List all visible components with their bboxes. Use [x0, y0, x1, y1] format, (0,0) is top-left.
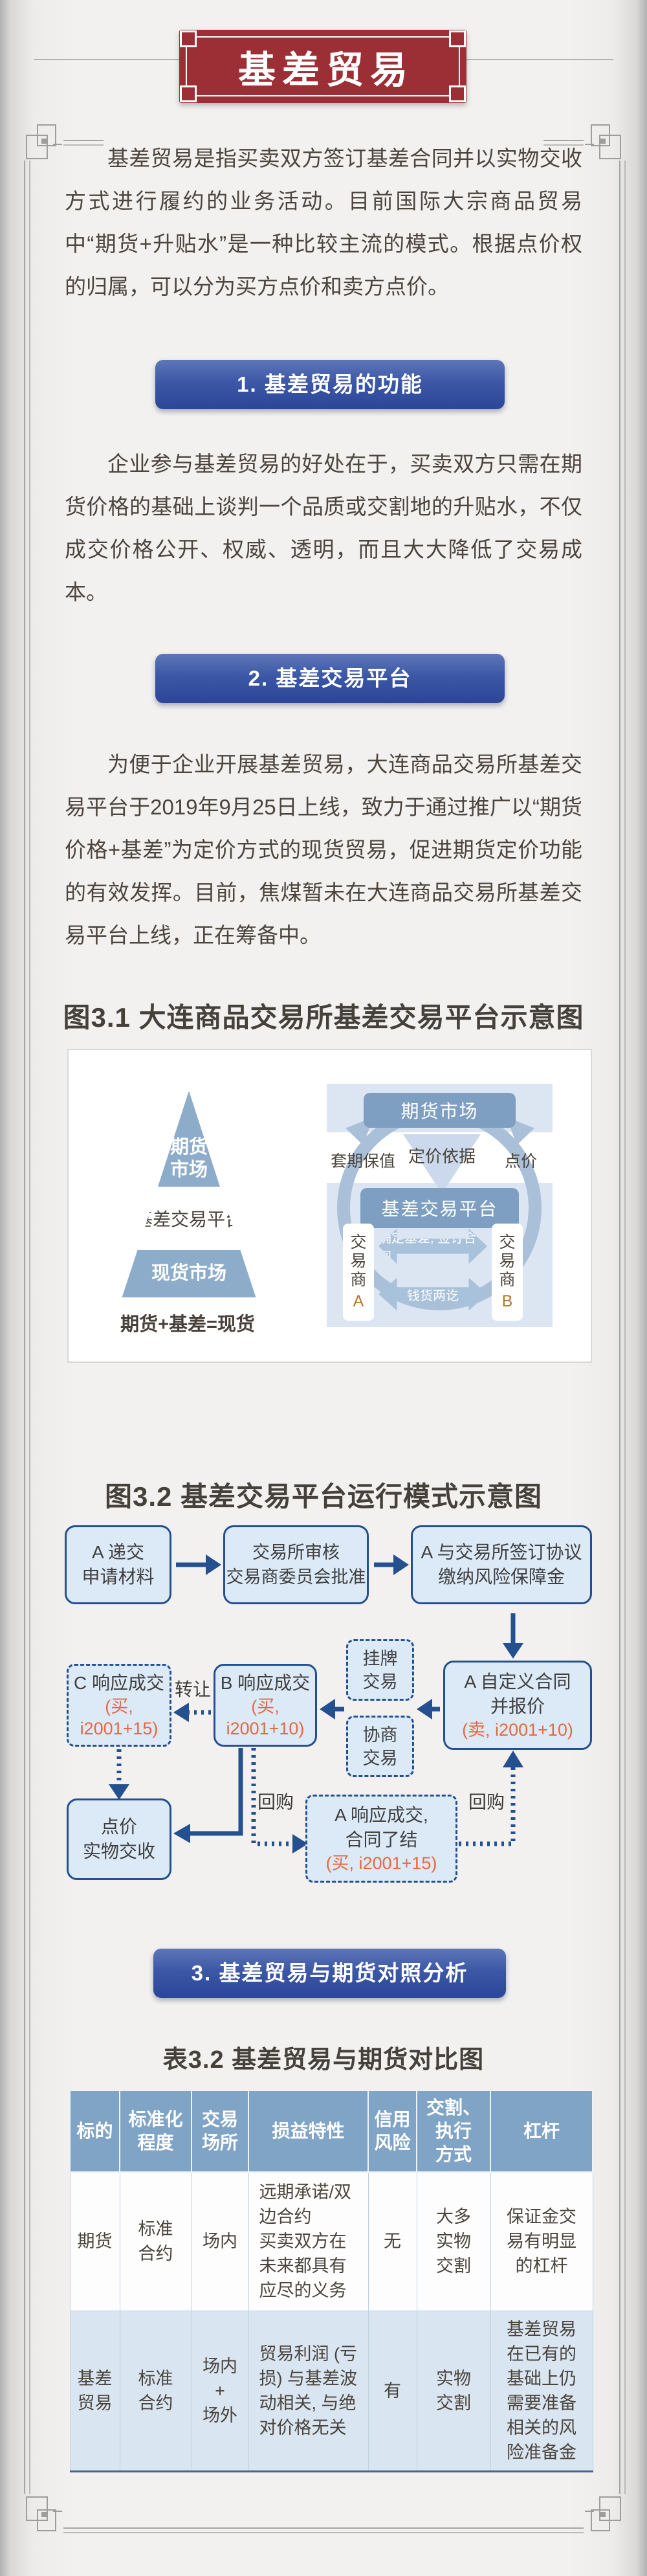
cell: 基差贸易在已有的基础上仍需要准备相关的风险准备金 — [490, 2311, 593, 2471]
flow-quote-note: (卖, i2001+10) — [462, 1719, 573, 1741]
pyramid-bottom-layer: 现货市场 — [92, 1250, 286, 1297]
buyback-left-label: 回购 — [256, 1788, 295, 1814]
cell: 大多 实物 交割 — [417, 2172, 490, 2311]
flow-c-deal-box: C 响应成交 (买, i2001+15) — [67, 1664, 171, 1747]
frame-left-line — [24, 161, 30, 2494]
pricing-basis-label: 定价依据 — [388, 1143, 496, 1167]
table-row: 期货 标准 合约 场内 远期承诺/双边合约 买卖双方在未来都具有应尽的义务 无 … — [70, 2172, 593, 2311]
flow-c-deal-text: C 响应成交 — [74, 1671, 164, 1696]
buyback-right-label: 回购 — [467, 1788, 506, 1814]
title-banner: 基差贸易 — [179, 30, 466, 103]
table-row: 基差 贸易 标准 合约 场内 + 场外 贸易利润 (亏损) 与基差波动相关, 与… — [70, 2311, 593, 2471]
cell: 保证金交易有明显的杠杆 — [490, 2172, 593, 2311]
flow-negotiate-box: 协商 交易 — [346, 1716, 414, 1777]
comparison-table: 标的 标准化 程度 交易 场所 损益特性 信用 风险 交割、 执行 方式 杠杆 … — [69, 2090, 592, 2472]
cell: 实物 交割 — [417, 2311, 490, 2471]
cell: 标准 合约 — [120, 2311, 192, 2471]
transfer-label: 转让 — [172, 1675, 214, 1701]
flow-delivery-box: 点价 实物交收 — [67, 1798, 171, 1880]
cycle-basis-platform-box: 基差交易平台 — [360, 1188, 519, 1228]
trader-b-label: 交易商 — [499, 1233, 516, 1290]
section-header-2: 2. 基差交易平台 — [155, 654, 505, 703]
frame-right-line — [619, 161, 626, 2494]
page-title: 基差贸易 — [179, 30, 466, 103]
knot-ornament-bottom-right — [584, 2490, 621, 2533]
cycle-diagram-panel: 期货市场 定价依据 套期保值 点价 基差交易平台 交易商 A 交易商 B 确定基… — [327, 1084, 553, 1327]
pyramid-top-label: 期货 市场 — [170, 1136, 208, 1182]
flow-listing-box: 挂牌 交易 — [346, 1639, 414, 1701]
col-header: 交割、 执行 方式 — [417, 2090, 490, 2172]
flow-a-deal-box: A 响应成交, 合同了结 (买, i2001+15) — [305, 1795, 457, 1883]
col-header: 杠杆 — [490, 2090, 593, 2172]
col-header: 标准化 程度 — [120, 2090, 192, 2172]
cell: 远期承诺/双边合约 买卖双方在未来都具有应尽的义务 — [248, 2172, 368, 2311]
frame-bottom-line — [63, 2527, 584, 2533]
pyramid-bottom-label: 现货市场 — [151, 1262, 226, 1285]
intro-paragraph: 基差贸易是指买卖双方签订基差合同并以实物交收方式进行履约的业务活动。目前国际大宗… — [65, 137, 582, 308]
section-1-paragraph: 企业参与基差贸易的好处在于，买卖双方只需在期货价格的基础上谈判一个品质或交割地的… — [65, 443, 582, 614]
trader-a-label: 交易商 — [350, 1233, 367, 1290]
cell: 期货 — [70, 2172, 120, 2311]
cell: 场内 + 场外 — [192, 2311, 248, 2471]
knot-ornament-top-right — [584, 123, 621, 166]
pyramid-middle-layer: 基差交易平台 — [92, 1189, 286, 1248]
table-header-row: 标的 标准化 程度 交易 场所 损益特性 信用 风险 交割、 执行 方式 杠杆 — [70, 2090, 593, 2172]
col-header: 损益特性 — [248, 2090, 368, 2172]
pyramid-middle-label: 基差交易平台 — [135, 1205, 243, 1231]
trader-a-box: 交易商 A — [343, 1224, 374, 1321]
col-header: 信用 风险 — [368, 2090, 417, 2172]
flow-b-deal-text: B 响应成交 — [221, 1671, 310, 1696]
flow-review-box: 交易所审核 交易商委员会批准 — [223, 1525, 369, 1604]
flow-b-deal-note: (买, i2001+10) — [215, 1696, 315, 1740]
pyramid-top-layer: 期货 市场 — [92, 1091, 286, 1187]
pyramid-diagram: 期货 市场 基差交易平台 现货市场 — [92, 1091, 286, 1298]
section-2-paragraph: 为便于企业开展基差贸易，大连商品交易所基差交易平台于2019年9月25日上线，致… — [65, 743, 582, 957]
cycle-futures-market-box: 期货市场 — [364, 1093, 516, 1128]
flow-a-deal-text: A 响应成交, 合同了结 — [334, 1803, 428, 1852]
flow-a-deal-note: (买, i2001+15) — [326, 1852, 437, 1874]
section-header-1: 1. 基差贸易的功能 — [155, 360, 505, 409]
trader-b-box: 交易商 B — [492, 1224, 523, 1321]
flow-sign-box: A 与交易所签订协议 缴纳风险保障金 — [411, 1525, 592, 1604]
trader-a-letter: A — [353, 1292, 364, 1311]
col-header: 标的 — [70, 2090, 120, 2172]
pyramid-caption: 期货+基差=现货 — [91, 1309, 285, 1336]
flow-quote-box: A 自定义合同 并报价 (卖, i2001+10) — [443, 1661, 592, 1750]
col-header: 交易 场所 — [192, 2090, 248, 2172]
flow-quote-text: A 自定义合同 并报价 — [465, 1670, 571, 1719]
cell: 无 — [368, 2172, 417, 2311]
figure-3-1-title: 图3.1 大连商品交易所基差交易平台示意图 — [0, 996, 647, 1035]
knot-ornament-top-left — [26, 123, 63, 166]
knot-ornament-bottom-left — [26, 2490, 63, 2533]
cell: 标准 合约 — [120, 2172, 192, 2311]
cell: 基差 贸易 — [70, 2311, 120, 2471]
flow-c-deal-note: (买, i2001+15) — [69, 1696, 170, 1740]
trader-b-letter: B — [502, 1292, 513, 1311]
figure-3-2-title: 图3.2 基差交易平台运行模式示意图 — [0, 1475, 647, 1514]
point-price-label: 点价 — [494, 1148, 548, 1172]
flow-apply-box: A 递交 申请材料 — [65, 1525, 171, 1604]
cell: 贸易利润 (亏损) 与基差波动相关, 与绝对价格无关 — [248, 2311, 368, 2471]
hedging-label: 套期保值 — [328, 1148, 398, 1172]
flow-b-deal-box: B 响应成交 (买, i2001+10) — [214, 1664, 317, 1747]
table-3-2-title: 表3.2 基差贸易与期货对比图 — [0, 2039, 647, 2075]
infographic-page: 基差贸易 基差贸易是指买卖双方签订基差合同并以实物交收方式进行履约的业务活动。目… — [0, 0, 647, 2576]
cell: 有 — [368, 2311, 417, 2471]
section-header-3: 3. 基差贸易与期货对照分析 — [153, 1949, 506, 1998]
cell: 场内 — [192, 2172, 248, 2311]
